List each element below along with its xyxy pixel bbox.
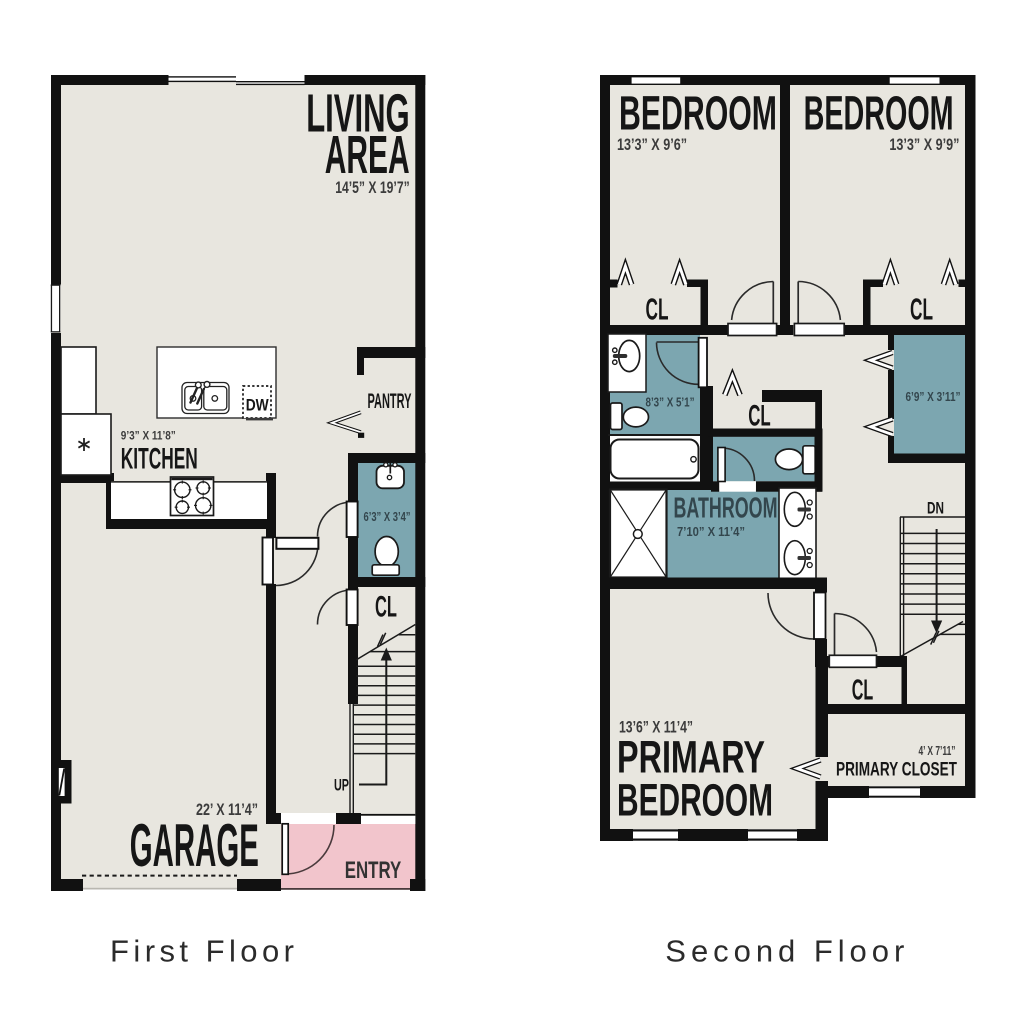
svg-text:KITCHEN: KITCHEN <box>121 442 198 475</box>
svg-text:GARAGE: GARAGE <box>130 812 259 879</box>
svg-text:6’3” X 3’4”: 6’3” X 3’4” <box>364 509 411 524</box>
svg-text:22’ X 11’4”: 22’ X 11’4” <box>196 800 258 819</box>
svg-text:DN: DN <box>927 500 944 518</box>
svg-text:BEDROOM: BEDROOM <box>804 88 954 141</box>
svg-text:AREA: AREA <box>325 126 410 185</box>
svg-text:BEDROOM: BEDROOM <box>619 88 777 141</box>
svg-text:4’ X 7’11”: 4’ X 7’11” <box>919 744 956 758</box>
svg-text:6’9” X 3’11”: 6’9” X 3’11” <box>906 389 961 404</box>
svg-text:CL: CL <box>910 292 933 327</box>
svg-text:CL: CL <box>646 292 669 327</box>
svg-text:CL: CL <box>852 675 874 707</box>
svg-text:9’3” X 11’8”: 9’3” X 11’8” <box>121 429 176 443</box>
svg-text:CL: CL <box>748 400 771 433</box>
svg-text:14’5” X 19’7”: 14’5” X 19’7” <box>335 178 410 197</box>
svg-text:BATHROOM: BATHROOM <box>674 492 778 524</box>
svg-text:BEDROOM: BEDROOM <box>617 775 773 826</box>
svg-text:PRIMARY CLOSET: PRIMARY CLOSET <box>836 759 957 781</box>
svg-text:CL: CL <box>375 591 397 624</box>
svg-text:PANTRY: PANTRY <box>368 389 412 413</box>
svg-text:8’3” X 5’1”: 8’3” X 5’1” <box>646 394 695 409</box>
svg-text:13’3” X 9’9”: 13’3” X 9’9” <box>889 135 959 154</box>
svg-text:UP: UP <box>334 777 349 795</box>
svg-text:13’3” X 9’6”: 13’3” X 9’6” <box>617 135 687 154</box>
svg-text:7’10” X 11’4”: 7’10” X 11’4” <box>677 524 745 539</box>
svg-text:ENTRY: ENTRY <box>345 857 402 884</box>
svg-text:DW: DW <box>246 397 269 415</box>
